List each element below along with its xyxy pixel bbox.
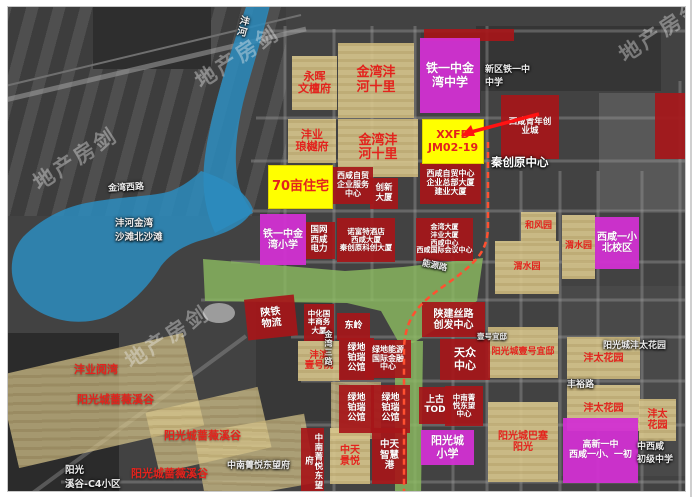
yangguangcheng-xiaoxue-label: 小学 — [437, 448, 459, 460]
bg-xigu-c4-xiaoqu: 阳光溪谷-C4小区 — [65, 462, 121, 490]
lvdi-boru-gongguan-2: 绿地铂瑞公馆 — [339, 385, 374, 433]
bg-zhongnan-jingyue-dongwangfu-line: 中南菁悦东望府 — [227, 458, 290, 471]
weishuiyuan-west-label: 渭水园 — [513, 263, 540, 273]
yangguangcheng-basai-yangguang: 阳光城巴塞阳光 — [488, 402, 558, 482]
zimao-zhongxin-zongbu-label: 建业大厦 — [435, 188, 467, 197]
map-world: 永晖文檀府金湾沣河十里沣业琅樾府金湾沣河十里和风园渭水园渭水园沣滨壹号院阳光城壹… — [7, 6, 686, 492]
hefengyuan: 和风园 — [521, 212, 556, 241]
70mu-zhuzhai: 70亩住宅 — [268, 165, 333, 209]
jinwan-fenghe-shili-south-label: 河十里 — [358, 148, 397, 162]
bg-xigu-c4-xiaoqu-line: 溪谷-C4小区 — [65, 476, 121, 490]
tieyizhong-jinwan-zhongxue: 铁一中金湾中学 — [420, 38, 480, 113]
weishuiyuan-west: 渭水园 — [495, 241, 559, 294]
xixian-yixiao-beixiaoqu-label: 北校区 — [602, 243, 632, 254]
yangguangcheng-basai-yangguang-label: 阳光 — [513, 442, 533, 453]
road-fengyu-lu: 丰裕路 — [567, 377, 594, 390]
zhongtian-jingyue-label: 中天 — [340, 445, 360, 456]
map-canvas: 永晖文檀府金湾沣河十里沣业琅樾府金湾沣河十里和风园渭水园渭水园沣滨壹号院阳光城壹… — [7, 6, 686, 492]
red-block-right-edge — [655, 93, 686, 159]
jinwan-dasha-xixian-zhongxin-label: 西咸国际会议中心 — [417, 247, 473, 255]
xxfd-jm02-19-label: JM02-19 — [428, 142, 478, 154]
yonghui-wentanfu-label: 文檀府 — [298, 83, 331, 95]
page-edge-line — [690, 0, 692, 497]
bg-fenghe-jinwan-shatan-line: 沣河金湾 — [115, 215, 163, 229]
page-frame: 永晖文檀府金湾沣河十里沣业琅樾府金湾沣河十里和风园渭水园渭水园沣滨壹号院阳光城壹… — [0, 0, 700, 497]
lvdi-boru-gongguan-3-label: 公馆 — [381, 414, 399, 424]
lvdi-boru-gongguan-2-label: 公馆 — [347, 414, 365, 424]
tieyizhong-jinwan-zhongxue-label: 铁一中金 — [426, 62, 474, 75]
fengye-yuewan: 沣业阅湾 — [74, 361, 118, 377]
zhongnan-jingyue-dongwang-zhongxin-label: 中心 — [457, 410, 472, 418]
nuofute-xixian-dasha: 诺富特酒店西咸大厦秦创原科创大厦 — [337, 218, 395, 262]
xixian-yixiao-beixiaoqu: 西咸一小北校区 — [595, 217, 639, 269]
bg-fenghe-jinwan-shatan: 沣河金湾沙滩北沙滩 — [115, 215, 163, 243]
bg-qinchuangyuan-zhongxin: 秦创原中心 — [491, 154, 549, 170]
zhongtian-zhihui-gang: 中天智慧港 — [372, 428, 407, 484]
fengtai-huayuan-1-label: 沣太花园 — [584, 353, 624, 364]
gaoxin-yizhong-xixian-yixiao: 高新一中西咸一小、一初 — [563, 418, 638, 483]
watermark-text: 地产房剑 — [613, 6, 686, 69]
shanjian-silu-chuangfa-zhongxin-label: 陕建丝路 — [434, 309, 474, 320]
yangguangcheng-yihao-yidi-label: 阳光城壹号宜邸 — [491, 348, 554, 358]
road-jinwan-sanlu: 金湾三路 — [323, 330, 334, 366]
jinwan-fenghe-shili-north: 金湾沣河十里 — [338, 43, 414, 118]
70mu-zhuzhai-label: 70亩住宅 — [272, 180, 329, 194]
lvdi-nengyuan-guoji-jinrong-label: 中心 — [380, 363, 396, 372]
tieyizhong-jinwan-xiaoxue-label: 铁一中金 — [263, 229, 303, 240]
bg-chuji-zhongxue-line: 初级中学 — [637, 452, 673, 465]
xixian-qingnian-chuangyecheng-label: 业城 — [521, 127, 538, 136]
dongling: 东岭 — [337, 313, 370, 340]
gaoxin-yizhong-xixian-yixiao-label: 西咸一小、一初 — [569, 451, 632, 461]
weishuiyuan-east-label: 渭水园 — [565, 242, 592, 252]
yangguangcheng-xiaoxue: 阳光城小学 — [421, 430, 474, 465]
lvdi-nengyuan-guoji-jinrong: 绿地能源国际金融中心 — [365, 340, 411, 378]
tieyizhong-jinwan-xiaoxue: 铁一中金湾小学 — [260, 214, 306, 265]
bg-xinqu-tieyizhong-line: 新区铁一中 — [485, 62, 530, 75]
road-jinwan-xilu-line: 金湾西路 — [108, 179, 145, 194]
bg-yangguangcheng-fengtai-huayuan: 阳光城沣太花园 — [603, 338, 666, 351]
road-jinwan-xilu: 金湾西路 — [108, 179, 145, 194]
fengtai-huayuan-2-label: 沣太花园 — [584, 403, 624, 414]
shantie-wuliu-label: 物流 — [261, 316, 282, 329]
fengtai-huayuan-3: 沣太花园 — [639, 399, 676, 441]
fengtai-huayuan-3-label: 花园 — [648, 420, 668, 431]
yangguangcheng-basai-yangguang-label: 阳光城巴塞 — [498, 431, 548, 442]
zimao-qiye-fuwu-zhongxin-label: 中心 — [345, 190, 361, 199]
tianzhong-zhongxin: 天众中心 — [440, 339, 490, 380]
shanjian-silu-chuangfa-zhongxin: 陕建丝路创发中心 — [422, 302, 485, 337]
yonghui-wentanfu: 永晖文檀府 — [292, 56, 337, 110]
zimao-zhongxin-zongbu: 西咸自贸中心企业总部大厦建业大厦 — [420, 163, 481, 204]
bg-yihao-yidi: 壹号宜邸 — [477, 331, 507, 342]
zhongnan-jingyue-dongwang-zhongxin: 中南菁悦东望中心 — [445, 386, 483, 426]
road-fengyu-lu-line: 丰裕路 — [567, 377, 594, 390]
nuofute-xixian-dasha-label: 秦创原科创大厦 — [340, 244, 393, 252]
bg-yangguangcheng-fengtai-huayuan-line: 阳光城沣太花园 — [603, 338, 666, 351]
jinwan-fenghe-shili-south-label: 金湾沣 — [358, 134, 397, 148]
zhongtian-jingyue: 中天景悦 — [330, 428, 370, 484]
bg-qinchuangyuan-zhongxin-line: 秦创原中心 — [491, 154, 549, 170]
lvdi-boru-gongguan-1-label: 公馆 — [347, 364, 365, 374]
bg-chuji-zhongxue: 中西咸初级中学 — [637, 439, 673, 465]
hefengyuan-label: 和风园 — [525, 222, 552, 232]
bg-xinqu-tieyizhong-line: 中学 — [485, 75, 530, 88]
tianzhong-zhongxin-label: 天众 — [454, 347, 476, 359]
tieyizhong-jinwan-xiaoxue-label: 湾小学 — [268, 240, 298, 251]
zhongnan-jingyue-dongwang-fu-label: 中南菁悦东望府 — [303, 428, 322, 492]
xixian-qingnian-chuangyecheng: 西咸青年创业城 — [501, 95, 559, 159]
yangguangcheng-xiaoxue-label: 阳光城 — [431, 435, 464, 447]
qiangwei-xigu-3: 阳光城蔷薇溪谷 — [131, 465, 208, 481]
lvdi-boru-gongguan-3: 绿地铂瑞公馆 — [371, 385, 410, 433]
weishuiyuan-east: 渭水园 — [562, 215, 595, 279]
guowang-xixian-dianli-label: 电力 — [310, 245, 327, 254]
tieyizhong-jinwan-zhongxue-label: 湾中学 — [432, 76, 468, 89]
shantie-wuliu: 陕铁物流 — [244, 294, 298, 340]
shanjian-silu-chuangfa-zhongxin-label: 创发中心 — [434, 320, 474, 331]
bg-chuji-zhongxue-line: 中西咸 — [637, 439, 673, 452]
jinwan-fenghe-shili-north-label: 河十里 — [356, 81, 395, 95]
bg-zhongnan-jingyue-dongwangfu: 中南菁悦东望府 — [227, 458, 290, 471]
xxfd-jm02-19: XXFDJM02-19 — [422, 119, 484, 164]
qiangwei-xigu-2: 阳光城蔷薇溪谷 — [164, 427, 241, 443]
qiangwei-xigu-1: 阳光城蔷薇溪谷 — [77, 391, 154, 407]
bg-fenghe-jinwan-shatan-line: 沙滩北沙滩 — [115, 229, 163, 243]
bg-xinqu-tieyizhong: 新区铁一中中学 — [485, 62, 530, 88]
bg-xigu-c4-xiaoqu-line: 阳光 — [65, 462, 121, 476]
jinwan-fenghe-shili-north-label: 金湾沣 — [356, 66, 395, 80]
road-jinwan-sanlu-line: 金湾三路 — [323, 330, 334, 366]
fengtai-huayuan-3-label: 沣太 — [648, 409, 668, 420]
xixian-yixiao-beixiaoqu-label: 西咸一小 — [597, 232, 637, 243]
fengye-langyuefu-label: 琅樾府 — [296, 141, 329, 153]
tianzhong-zhongxin-label: 中心 — [454, 360, 476, 372]
guowang-xixian-dianli: 国网西咸电力 — [303, 222, 335, 259]
dongling-label: 东岭 — [344, 322, 362, 332]
zimao-qiye-fuwu-zhongxin: 西咸自贸企业服务中心 — [333, 167, 373, 204]
chuangxin-dasha: 创新大厦 — [370, 178, 398, 209]
zhongtian-jingyue-label: 景悦 — [340, 456, 360, 467]
chuangxin-dasha-label: 大厦 — [375, 194, 392, 203]
zhongnan-jingyue-dongwang-fu: 中南菁悦东望府 — [301, 428, 324, 492]
shanggu-tod-label: TOD — [424, 406, 445, 416]
xxfd-jm02-19-label: XXFD — [436, 129, 470, 141]
jinwan-dasha-xixian-zhongxin: 金湾大厦沣业大厦西咸中心西咸国际会议中心 — [416, 218, 473, 261]
bg-yihao-yidi-line: 壹号宜邸 — [477, 331, 507, 342]
zhongtian-zhihui-gang-label: 港 — [385, 461, 395, 471]
fengye-langyuefu: 沣业琅樾府 — [288, 119, 336, 163]
